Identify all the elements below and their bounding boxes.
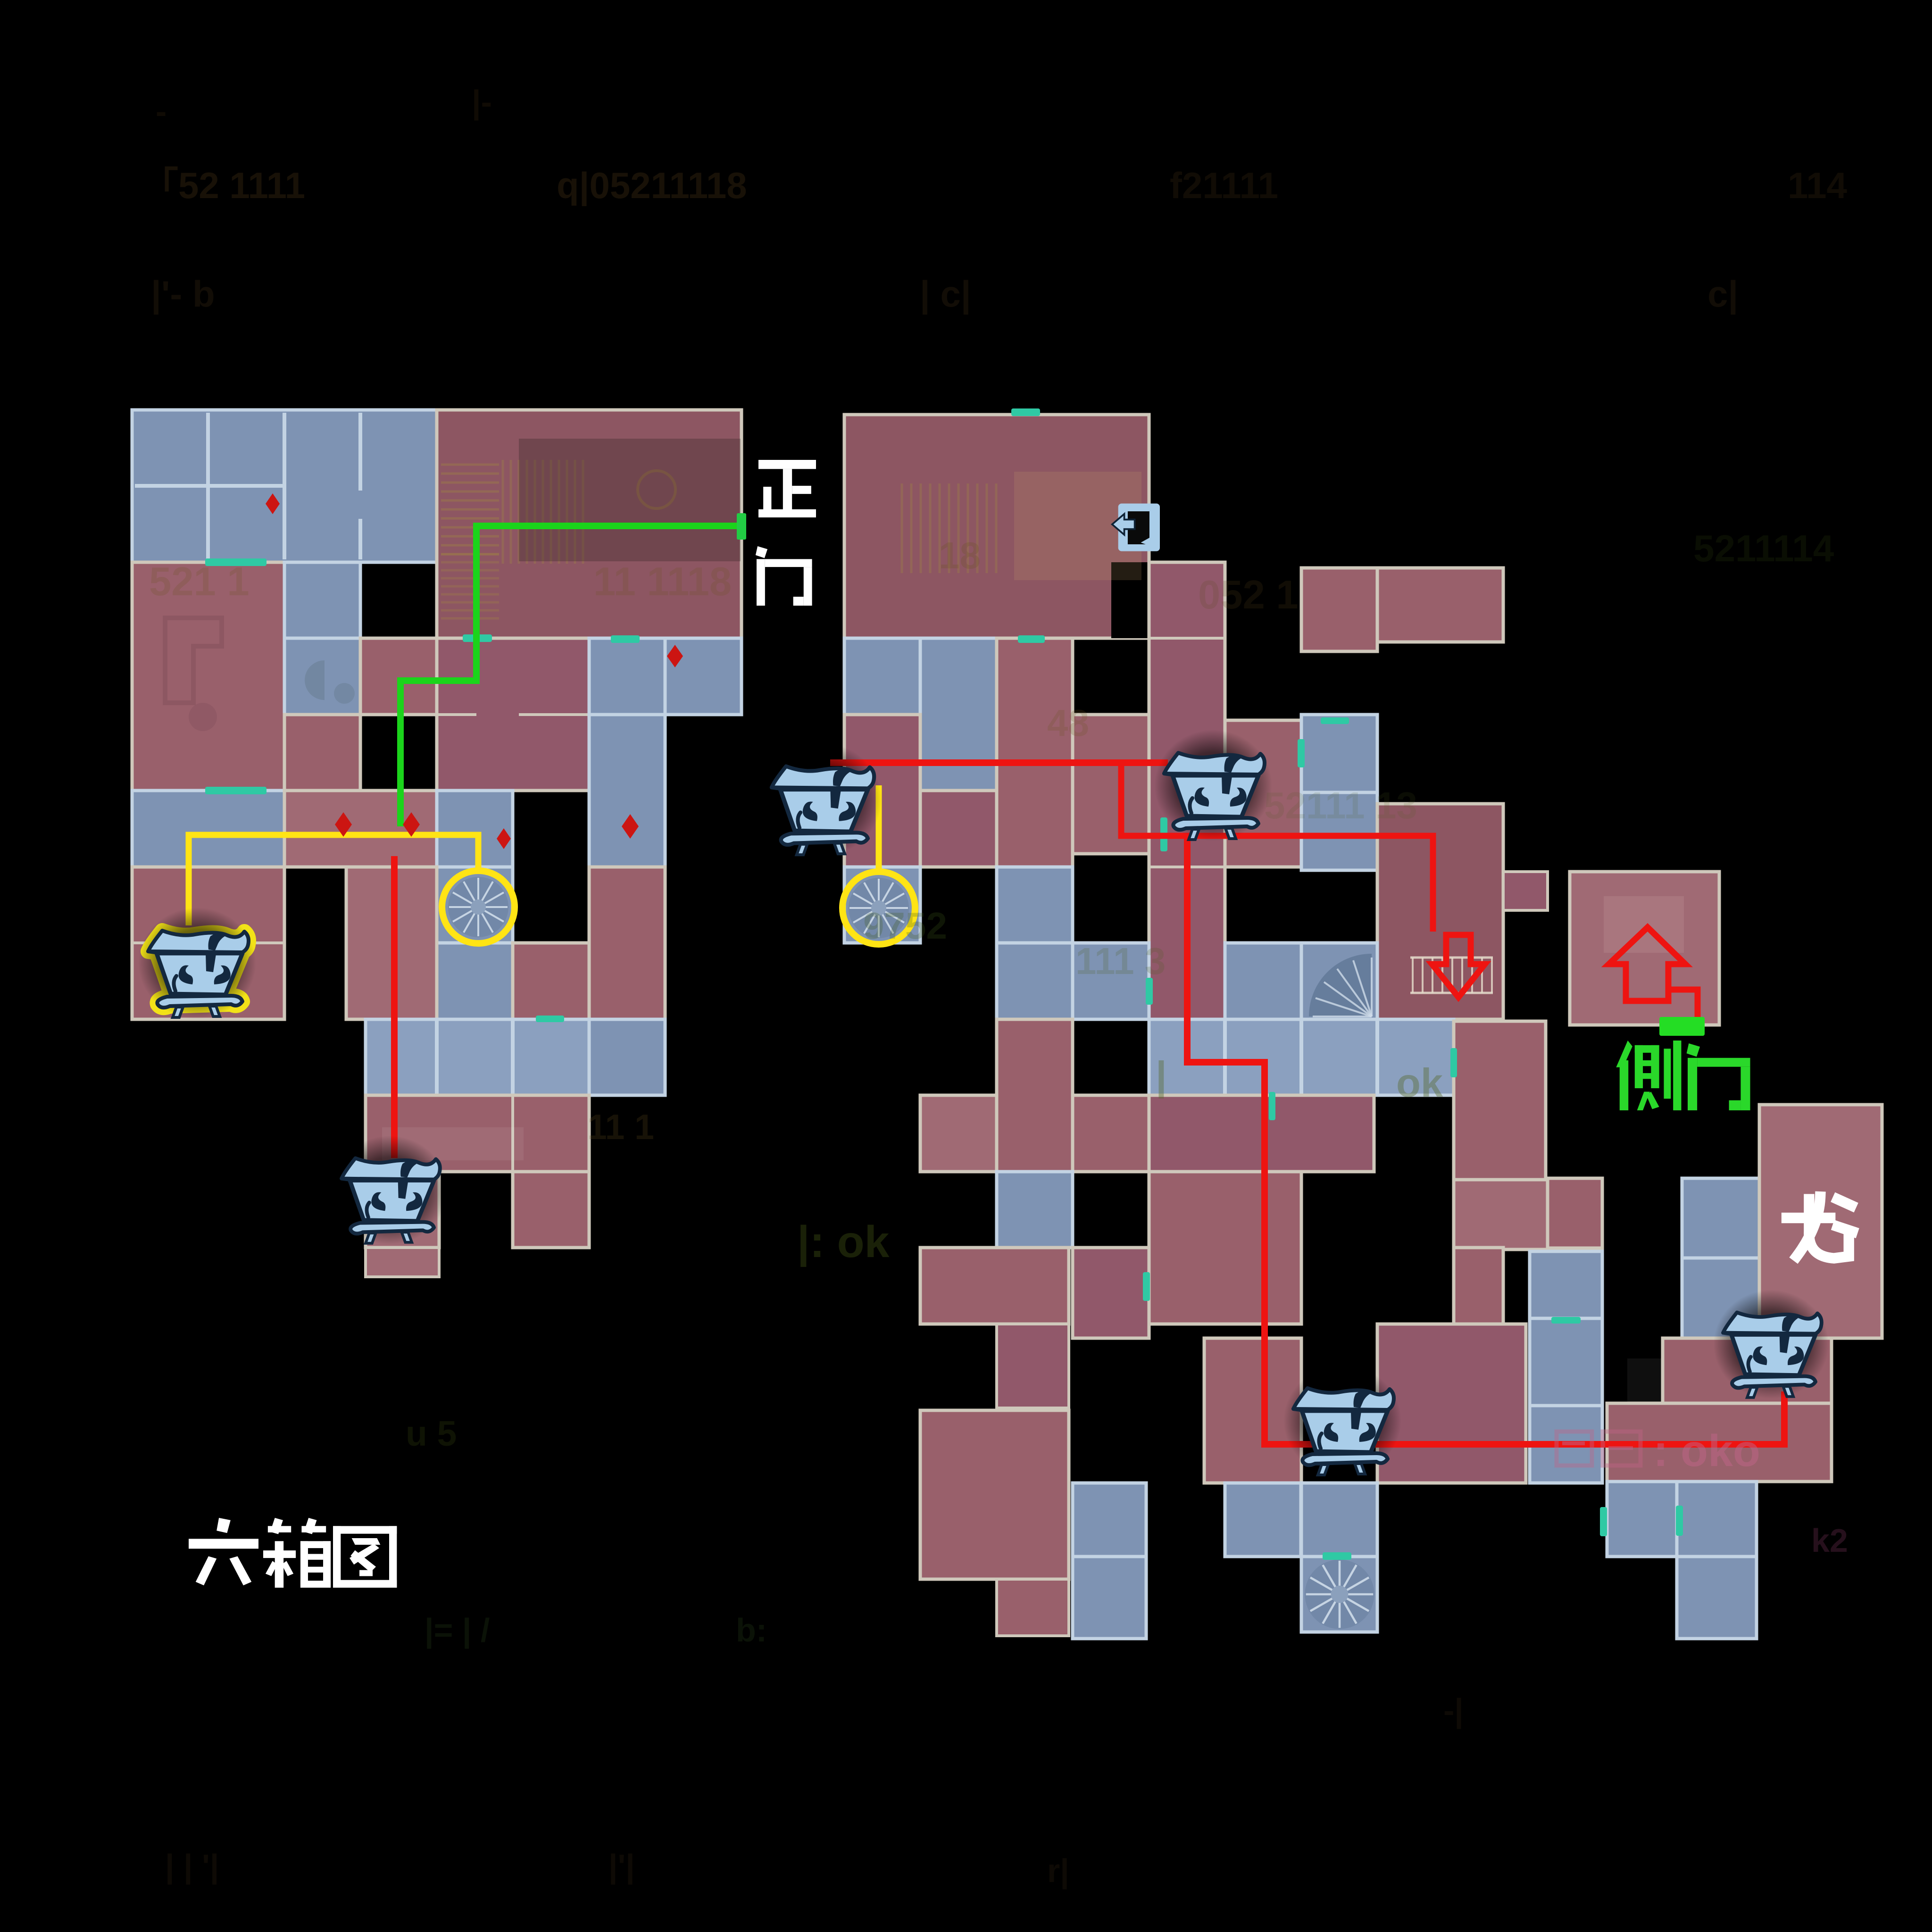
svg-text:| c|: | c| (920, 273, 971, 315)
svg-text:「52 1111: 「52 1111 (142, 165, 305, 206)
svg-text:f21111: f21111 (1170, 165, 1278, 206)
svg-text:114: 114 (1788, 165, 1847, 206)
svg-text:ok: ok (1396, 1061, 1443, 1106)
svg-text:52111 13: 52111 13 (1264, 784, 1417, 826)
svg-text:q|05211118: q|05211118 (557, 165, 747, 206)
svg-text:11 1: 11 1 (587, 1107, 654, 1147)
svg-text:-|: -| (1443, 1692, 1464, 1729)
svg-text:c|: c| (1707, 273, 1738, 315)
svg-text:5211114: 5211114 (1693, 527, 1834, 569)
svg-text:521 1: 521 1 (149, 559, 250, 604)
svg-text:-: - (156, 93, 167, 130)
svg-text:u 5: u 5 (406, 1414, 457, 1453)
svg-text:|: ok: |: ok (797, 1217, 890, 1267)
svg-text:111 3: 111 3 (1075, 940, 1166, 982)
svg-text:|= | /: |= | / (425, 1612, 490, 1649)
svg-text:: oko: : oko (1653, 1426, 1760, 1476)
svg-text:|'- b: |'- b (151, 273, 215, 315)
svg-text:|: | (1156, 1054, 1167, 1099)
svg-text:|-: |- (472, 83, 492, 121)
svg-text:| | '|: | | '| (165, 1848, 219, 1885)
svg-text:r|: r| (1047, 1852, 1069, 1890)
svg-text:052 1: 052 1 (1198, 573, 1299, 617)
svg-text:k2: k2 (1811, 1522, 1848, 1559)
svg-text:11 1118: 11 1118 (593, 559, 732, 604)
svg-text:9752: 9752 (863, 905, 947, 947)
svg-text:b:: b: (736, 1612, 767, 1649)
svg-text:48: 48 (1047, 702, 1089, 744)
svg-text:18: 18 (939, 534, 981, 576)
svg-text:|'|: |'| (608, 1848, 635, 1885)
